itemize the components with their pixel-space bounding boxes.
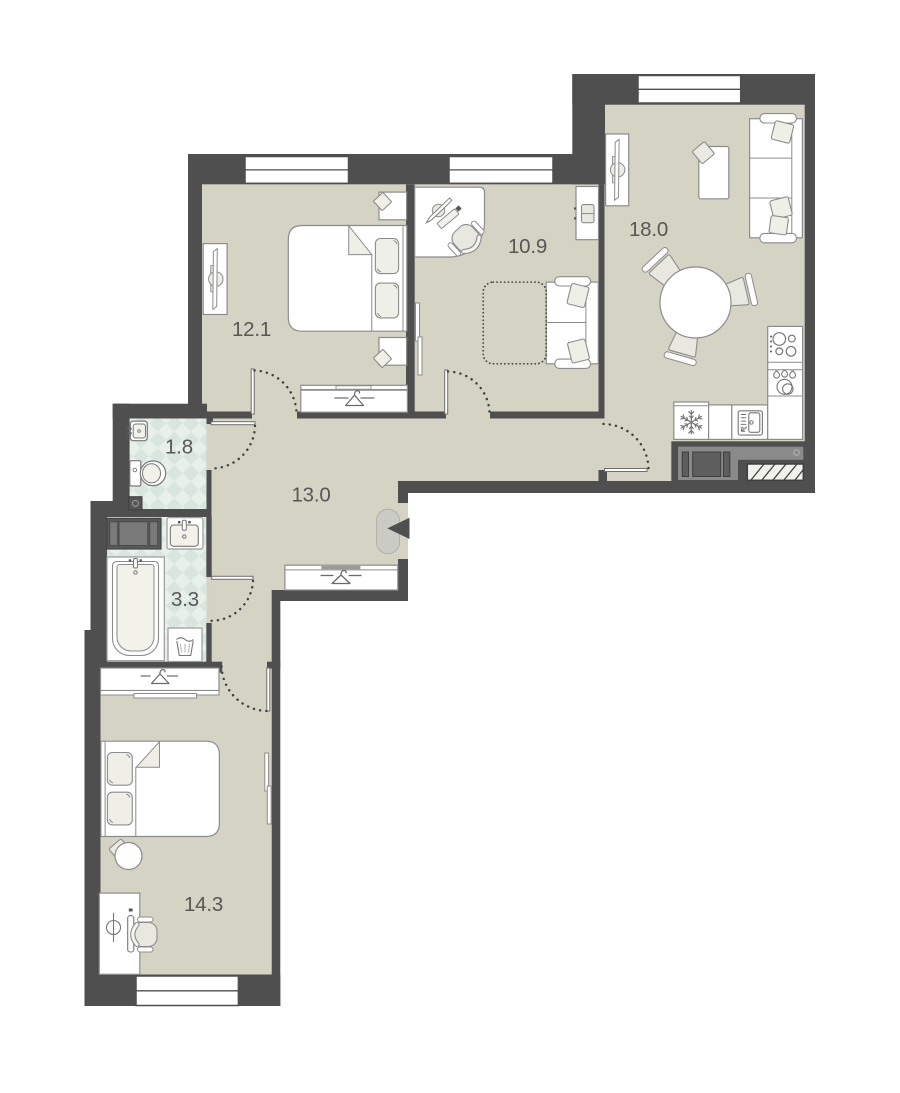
- svg-text:1.8: 1.8: [165, 436, 193, 459]
- svg-text:18.0: 18.0: [629, 218, 668, 241]
- svg-text:10.9: 10.9: [508, 235, 547, 258]
- svg-text:12.1: 12.1: [232, 318, 271, 341]
- svg-text:14.3: 14.3: [184, 893, 223, 916]
- svg-text:13.0: 13.0: [291, 484, 330, 507]
- svg-text:3.3: 3.3: [171, 588, 199, 611]
